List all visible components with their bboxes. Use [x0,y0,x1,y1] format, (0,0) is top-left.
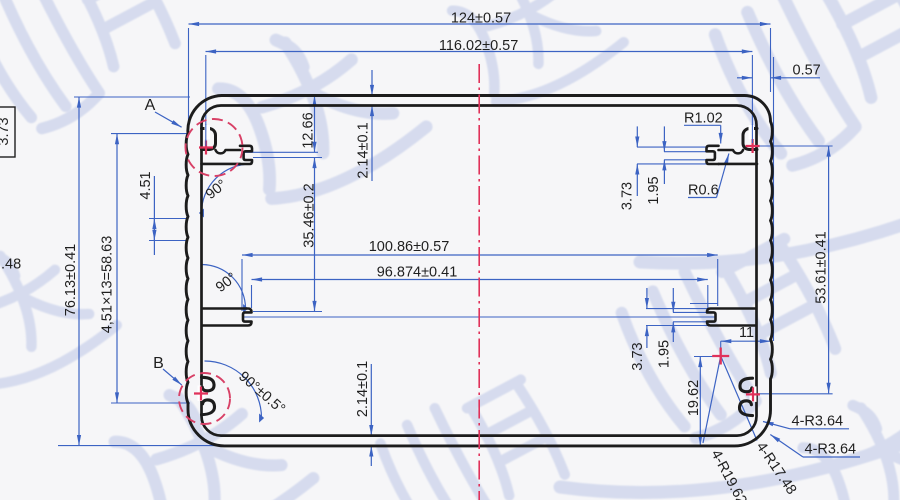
svg-text:4-R3.64: 4-R3.64 [805,442,857,458]
svg-text:R0.6: R0.6 [688,183,719,199]
svg-text:19.62: 19.62 [686,380,702,416]
svg-text:R1.02: R1.02 [684,111,723,127]
svg-text:3.73: 3.73 [0,117,12,145]
svg-text:96.874±0.41: 96.874±0.41 [377,265,458,281]
svg-text:100.86±0.57: 100.86±0.57 [369,239,450,255]
svg-text:35.46±0.2: 35.46±0.2 [302,183,318,247]
svg-text:4.51: 4.51 [138,171,154,199]
svg-text:1.95: 1.95 [657,340,673,368]
svg-text:4,51×13=58.63: 4,51×13=58.63 [100,236,116,334]
svg-text:1.95: 1.95 [646,176,662,204]
svg-text:76.13±0.41: 76.13±0.41 [63,244,79,316]
svg-text:116.02±0.57: 116.02±0.57 [439,38,518,54]
svg-text:124±0.57: 124±0.57 [451,11,511,27]
svg-text:.48: .48 [1,257,21,273]
svg-text:4-R3.64: 4-R3.64 [792,414,844,430]
svg-text:3.73: 3.73 [620,182,636,210]
svg-text:0.57: 0.57 [793,63,821,79]
svg-text:A: A [145,97,156,114]
svg-text:2.14±0.1: 2.14±0.1 [355,361,371,417]
svg-text:11: 11 [739,325,754,341]
svg-text:53.61±0.41: 53.61±0.41 [814,231,830,303]
svg-text:12.66: 12.66 [301,112,317,148]
svg-text:B: B [153,355,164,372]
svg-text:3.73: 3.73 [630,342,646,370]
svg-text:2.14±0.1: 2.14±0.1 [356,122,372,178]
